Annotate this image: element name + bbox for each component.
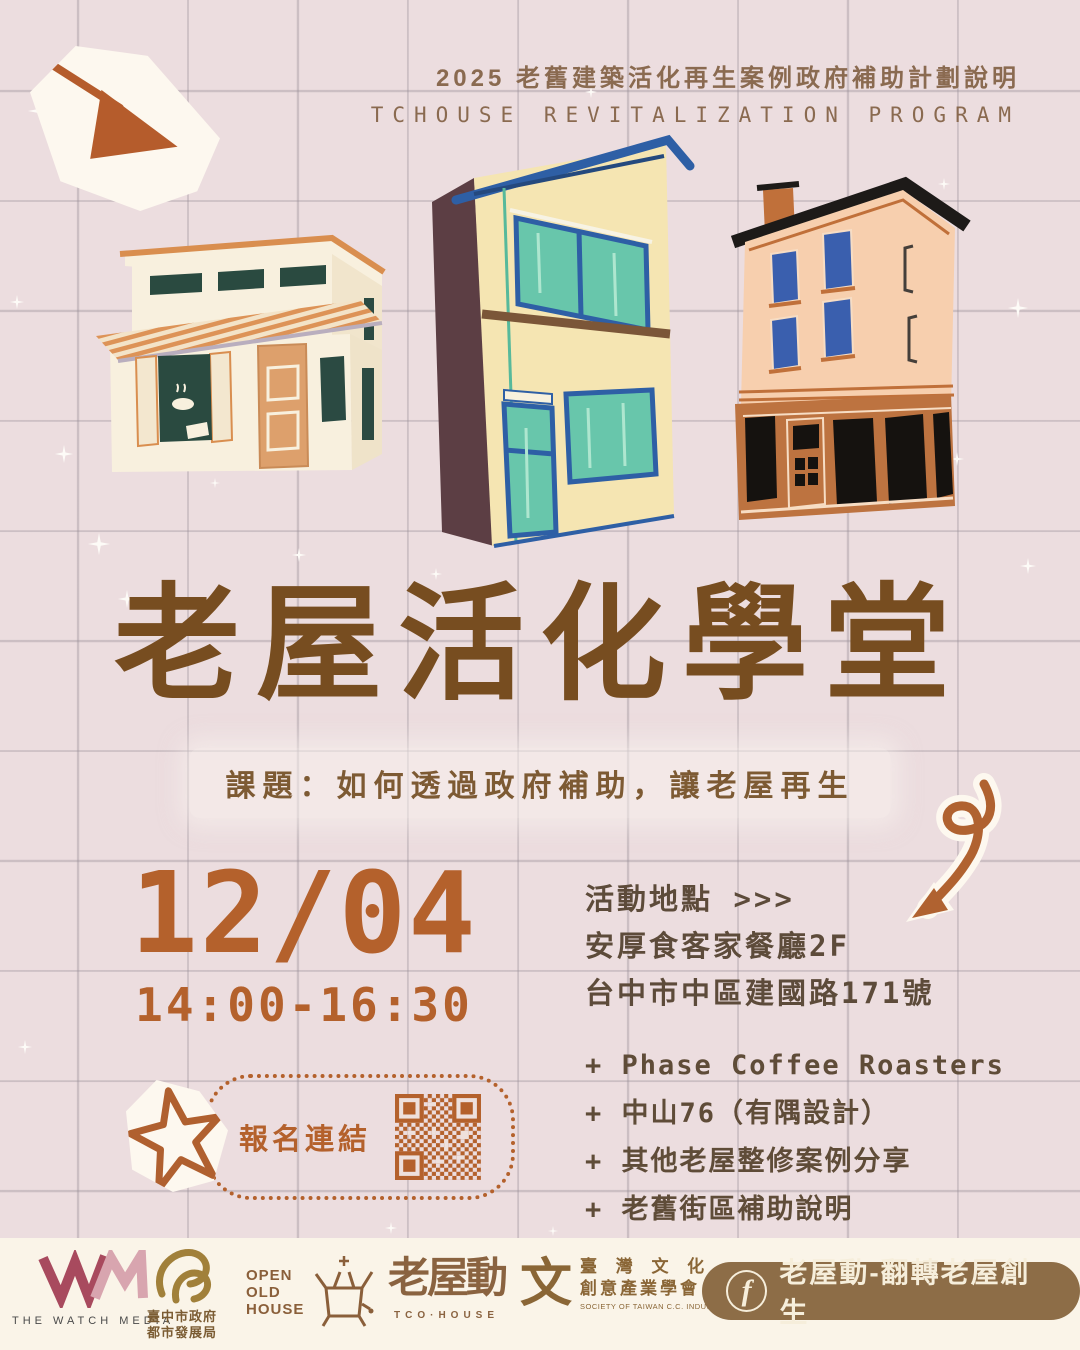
program-title-zh: 2025 老舊建築活化再生案例政府補助計劃說明 (371, 58, 1020, 93)
subtitle-band: 課題：如何透過政府補助，讓老屋再生 (190, 748, 891, 818)
qr-code (395, 1094, 481, 1180)
facebook-page-name: 老屋動-翻轉老屋創生 (779, 1251, 1056, 1331)
sparkle-icon (385, 1222, 397, 1234)
poster-title: 老屋活化學堂 (0, 582, 1080, 708)
society-glyph: 文 (520, 1258, 572, 1310)
venue-name: 安厚食客家餐廳2F (585, 923, 934, 970)
sparkle-icon (1008, 298, 1028, 318)
event-datetime: 12/04 14:00-16:30 (104, 856, 504, 1032)
event-poster: 2025 老舊建築活化再生案例政府補助計劃說明 TCHOUSE REVITALI… (0, 0, 1080, 1350)
agenda-list: + Phase Coffee Roasters + 中山76（有隅設計） + 其… (585, 1042, 1005, 1234)
house-illustration-left (80, 218, 400, 483)
gov-name-line1: 臺中市政府 (140, 1309, 224, 1325)
event-time: 14:00-16:30 (104, 978, 504, 1032)
sparkle-icon (55, 445, 73, 463)
sparkle-icon (18, 1040, 32, 1054)
paper-scrap (30, 46, 220, 211)
venue-address: 台中市中區建國路171號 (585, 970, 934, 1017)
tco-house-logo: 老屋動 TCO·HOUSE (388, 1248, 505, 1321)
footer-logo-bar: THE WATCH MEDIA 臺中市政府 都市發展局 OPEN OLD HOU… (0, 1238, 1080, 1350)
tco-logo-text: 老屋動 (388, 1248, 505, 1308)
tco-label: TCO·HOUSE (388, 1310, 505, 1321)
event-date: 12/04 (104, 856, 504, 974)
facebook-badge[interactable]: f 老屋動-翻轉老屋創生 (702, 1262, 1080, 1320)
gov-name-line2: 都市發展局 (140, 1325, 224, 1341)
gov-swirl-icon (140, 1242, 224, 1304)
ooh-line3: HOUSE (246, 1301, 304, 1318)
wm-logo-icon (37, 1250, 149, 1308)
agenda-item: + Phase Coffee Roasters (585, 1042, 1005, 1090)
poster-subtitle: 課題：如何透過政府補助，讓老屋再生 (226, 770, 855, 803)
ooh-line1: OPEN (246, 1267, 304, 1284)
agenda-item: + 中山76（有隅設計） (585, 1090, 1005, 1138)
sparkle-icon (88, 533, 110, 555)
arrow-doodle-icon (30, 46, 220, 211)
house-illustration-right (705, 168, 1010, 563)
sparkle-icon (1020, 558, 1036, 574)
ooh-line2: OLD (246, 1284, 304, 1301)
taichung-gov-logo: 臺中市政府 都市發展局 (140, 1242, 224, 1341)
sparkle-icon (292, 548, 306, 562)
sparkle-icon (548, 1226, 558, 1236)
agenda-item: + 其他老屋整修案例分享 (585, 1138, 1005, 1186)
signup-label: 報名連結 (239, 1116, 371, 1158)
house-illustration-middle (418, 118, 703, 563)
agenda-item: + 老舊街區補助說明 (585, 1186, 1005, 1234)
signup-link-button[interactable]: 報名連結 (205, 1074, 515, 1200)
program-header: 2025 老舊建築活化再生案例政府補助計劃說明 TCHOUSE REVITALI… (371, 58, 1020, 127)
open-old-house-logo: OPEN OLD HOUSE (246, 1254, 376, 1330)
open-box-icon (312, 1254, 376, 1330)
event-location: 活動地點 >>> 安厚食客家餐廳2F 台中市中區建國路171號 (585, 876, 934, 1017)
facebook-icon: f (726, 1270, 767, 1312)
sparkle-icon (10, 295, 24, 309)
location-label: 活動地點 >>> (585, 876, 934, 923)
